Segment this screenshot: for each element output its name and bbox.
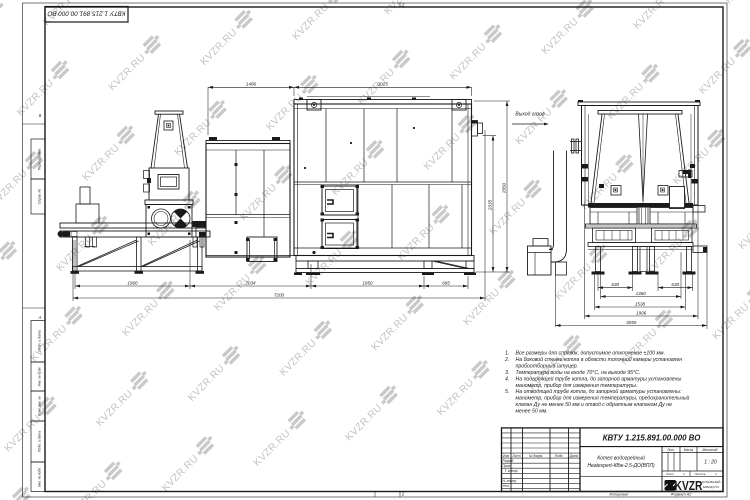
svg-text:клапан Ду не менее 50 мм и отв: клапан Ду не менее 50 мм и отвод с обрат… [516, 402, 673, 408]
svg-text:№ докум.: № докум. [529, 454, 543, 458]
svg-text:На подводящей трубе котла, до: На подводящей трубе котла, до запорной а… [516, 375, 682, 382]
svg-text:Справ. №: Справ. № [38, 188, 42, 204]
svg-text:На боковой стенке котла в обла: На боковой стенке котла в области топочн… [516, 356, 683, 363]
svg-text:А: А [37, 315, 41, 320]
svg-text:пробоотборный штуцер.: пробоотборный штуцер. [516, 362, 579, 369]
svg-text:630: 630 [671, 282, 679, 287]
svg-text:3.: 3. [505, 370, 509, 376]
svg-text:3050: 3050 [626, 320, 637, 325]
svg-text:Листов: Листов [694, 472, 706, 476]
svg-text:5.: 5. [505, 389, 509, 395]
svg-text:Лист: Лист [511, 454, 521, 458]
svg-text:Выход газов: Выход газов [515, 112, 545, 118]
svg-text:Изм: Изм [503, 454, 510, 458]
svg-text:Температура воды на входе 70°С: Температура воды на входе 70°С, на выход… [516, 370, 641, 376]
svg-text:630: 630 [611, 282, 619, 287]
svg-text:Подп. и дата: Подп. и дата [38, 330, 42, 351]
svg-text:Инв. № подл.: Инв. № подл. [38, 467, 42, 487]
svg-text:менее 50 мм.: менее 50 мм. [516, 409, 548, 415]
svg-text:Н. контр.: Н. контр. [503, 479, 517, 483]
svg-text:Масштаб: Масштаб [703, 448, 718, 452]
svg-text:4.: 4. [505, 376, 509, 382]
svg-text:Котел водогрейный: Котел водогрейный [597, 455, 645, 462]
svg-text:685: 685 [442, 280, 450, 285]
svg-text:1950: 1950 [362, 280, 373, 285]
svg-text:Лист: Лист [665, 472, 674, 476]
svg-text:Взам. инв. №: Взам. инв. № [38, 396, 42, 416]
svg-text:3025: 3025 [378, 82, 389, 87]
svg-text:Дата: Дата [569, 454, 579, 458]
svg-text:7200: 7200 [274, 292, 285, 297]
svg-text:Подп. и дата: Подп. и дата [38, 431, 42, 452]
svg-text:1486: 1486 [246, 82, 257, 87]
svg-text:Копировал: Копировал [610, 493, 630, 497]
svg-text:Утв.: Утв. [503, 484, 510, 488]
svg-text:2.: 2. [504, 357, 509, 363]
svg-text:2950: 2950 [502, 182, 507, 194]
svg-text:Масса: Масса [684, 448, 694, 452]
svg-text:Т. контр.: Т. контр. [505, 469, 519, 473]
svg-text:2034: 2034 [244, 280, 256, 285]
svg-text:1538: 1538 [635, 301, 646, 306]
svg-text:1.: 1. [505, 351, 509, 357]
svg-text:Инв. № дубл.: Инв. № дубл. [38, 367, 42, 387]
svg-text:Все размеры для справок, допус: Все размеры для справок, допустимое откл… [516, 351, 666, 357]
svg-text:манометр, прибор для измерения: манометр, прибор для измерения температу… [516, 395, 690, 402]
svg-text:Лит.: Лит. [666, 448, 675, 452]
svg-text:2335: 2335 [488, 199, 493, 211]
svg-text:ЗАВОД РУС: ЗАВОД РУС [703, 485, 721, 489]
svg-text:Подп.: Подп. [555, 454, 564, 458]
svg-text:Heatexpert-КВж-2,5-ДО(ВПЛ): Heatexpert-КВж-2,5-ДО(ВПЛ) [587, 463, 655, 469]
svg-text:КВТУ 1.215.891.00.000 ВО: КВТУ 1.215.891.00.000 ВО [47, 10, 125, 17]
svg-text:2: 2 [401, 3, 405, 8]
svg-text:Разраб.: Разраб. [503, 459, 515, 463]
svg-text:манометр, прибор для измерения: манометр, прибор для измерения температу… [516, 383, 638, 389]
svg-text:КВТУ 1.215.891.00.000 ВО: КВТУ 1.215.891.00.000 ВО [603, 434, 701, 443]
svg-text:1906: 1906 [636, 310, 647, 315]
svg-text:Перв. примен.: Перв. примен. [38, 148, 42, 171]
svg-text:1960: 1960 [127, 280, 138, 285]
svg-text:КОТЕЛЬНЫЙ: КОТЕЛЬНЫЙ [702, 480, 721, 484]
svg-text:Пров.: Пров. [503, 464, 512, 468]
svg-text:KVZR: KVZR [675, 480, 704, 493]
svg-text:1360: 1360 [636, 291, 647, 296]
svg-text:На отводящей трубе котла, до з: На отводящей трубе котла, до запорной ар… [516, 388, 682, 395]
svg-text:Формат А2: Формат А2 [671, 493, 693, 497]
svg-text:1 : 20: 1 : 20 [704, 460, 717, 466]
